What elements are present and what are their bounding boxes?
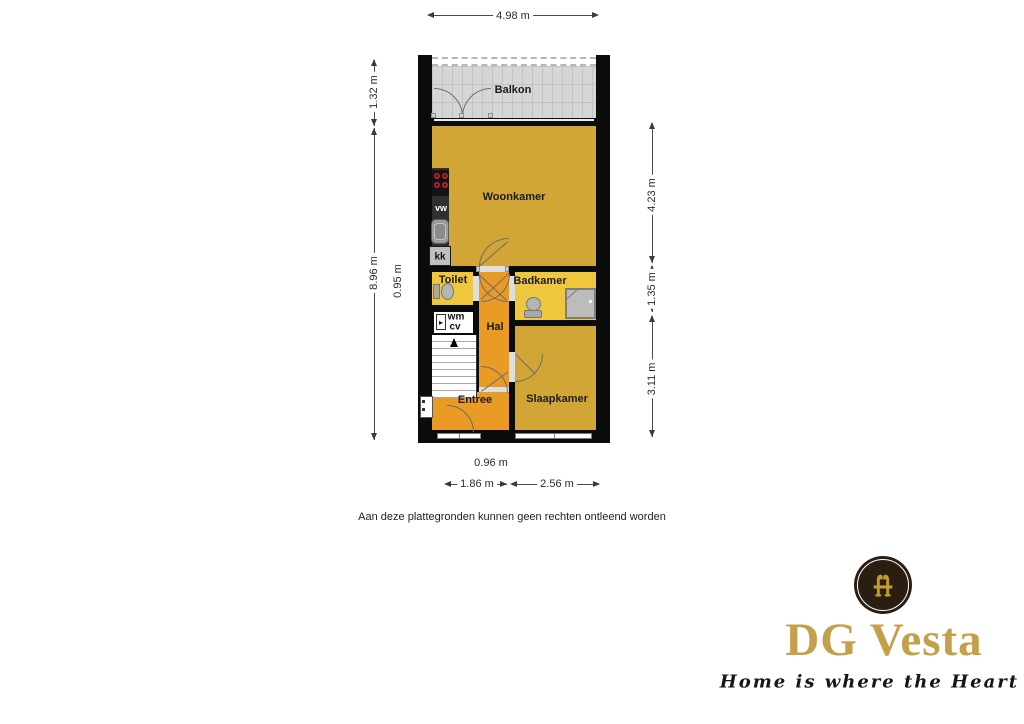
burner-icon [442,182,448,188]
dim-left-balcony: 1.32 m [368,72,380,112]
entree-window [437,433,481,439]
dim-arrow [371,119,377,126]
dim-arrow [500,481,507,487]
dim-right-lower: 3.11 m [646,360,658,399]
floorplan-page: ▸ wm cv vw kk Balkon Woonkamer Toilet [0,0,1024,724]
dim-arrow [592,12,599,18]
door-post [488,113,493,118]
room-label-toilet: Toilet [439,274,468,286]
dim-arrow [593,481,600,487]
window-tick [554,433,555,439]
dim-bottom-right: 2.56 m [537,478,577,490]
floor-slaapkamer [515,326,596,433]
room-label-entree: Entree [458,394,492,406]
sink-basin-icon [434,223,446,240]
dim-arrow [649,430,655,437]
disclaimer-text: Aan deze plattegronden kunnen geen recht… [358,511,666,523]
dim-left-total: 8.96 m [368,253,380,293]
dishwasher-label: vw [435,203,447,213]
shower-icon [565,288,596,319]
logo-tagline: Home is where the Heart is [720,672,1024,693]
room-label-hal: Hal [486,321,503,333]
shower-drain-icon [589,300,592,303]
dim-arrow [371,59,377,66]
burner-icon [442,173,448,179]
door-post [459,113,464,118]
room-label-badkamer: Badkamer [513,275,566,287]
burner-icon [434,173,440,179]
bathroom-toilet-tank-icon [524,310,542,318]
logo-emblem [854,556,912,614]
cv-label: cv [449,322,460,333]
dim-arrow [371,128,377,135]
balkon-window-line [434,119,594,121]
door-post [431,113,436,118]
wall-right [596,55,610,443]
room-label-woonkamer: Woonkamer [483,191,546,203]
front-door-hinge-icon [422,408,425,411]
room-label-slaapkamer: Slaapkamer [526,393,588,405]
burner-icon [434,182,440,188]
dim-arrow [510,481,517,487]
dim-left-inner: 0.95 m [392,261,404,301]
cv-boiler-icon: ▸ [436,314,446,330]
door-gap-toilet [473,276,479,301]
dim-right-middle: 1.35 m [646,269,658,309]
dim-right-upper: 4.23 m [646,175,658,215]
dim-arrow [649,122,655,129]
stairs-up-arrow-icon [450,338,458,347]
room-label-balkon: Balkon [495,84,532,96]
dim-arrow [649,315,655,322]
logo-name: DG Vesta [785,613,982,667]
dim-arrow [649,256,655,263]
front-door-hinge-icon [422,400,425,403]
balcony-railing [432,57,596,66]
dim-arrow [444,481,451,487]
wall-woonkamer-row-left [432,266,477,272]
slaapkamer-window [515,433,592,439]
dim-bottom-inner: 0.96 m [471,457,511,469]
wall-woonkamer-row-right [509,266,596,272]
wall-badkamer-slaapkamer [509,320,596,326]
dim-bottom-left: 1.86 m [457,478,497,490]
hearth-icon [866,568,900,602]
window-tick [459,433,460,439]
dim-arrow [371,433,377,440]
bathroom-toilet-bowl-icon [526,297,541,311]
dim-arrow [427,12,434,18]
dim-top-width: 4.98 m [493,10,533,22]
fridge-label: kk [434,252,445,263]
toilet-tank-icon [433,284,440,299]
